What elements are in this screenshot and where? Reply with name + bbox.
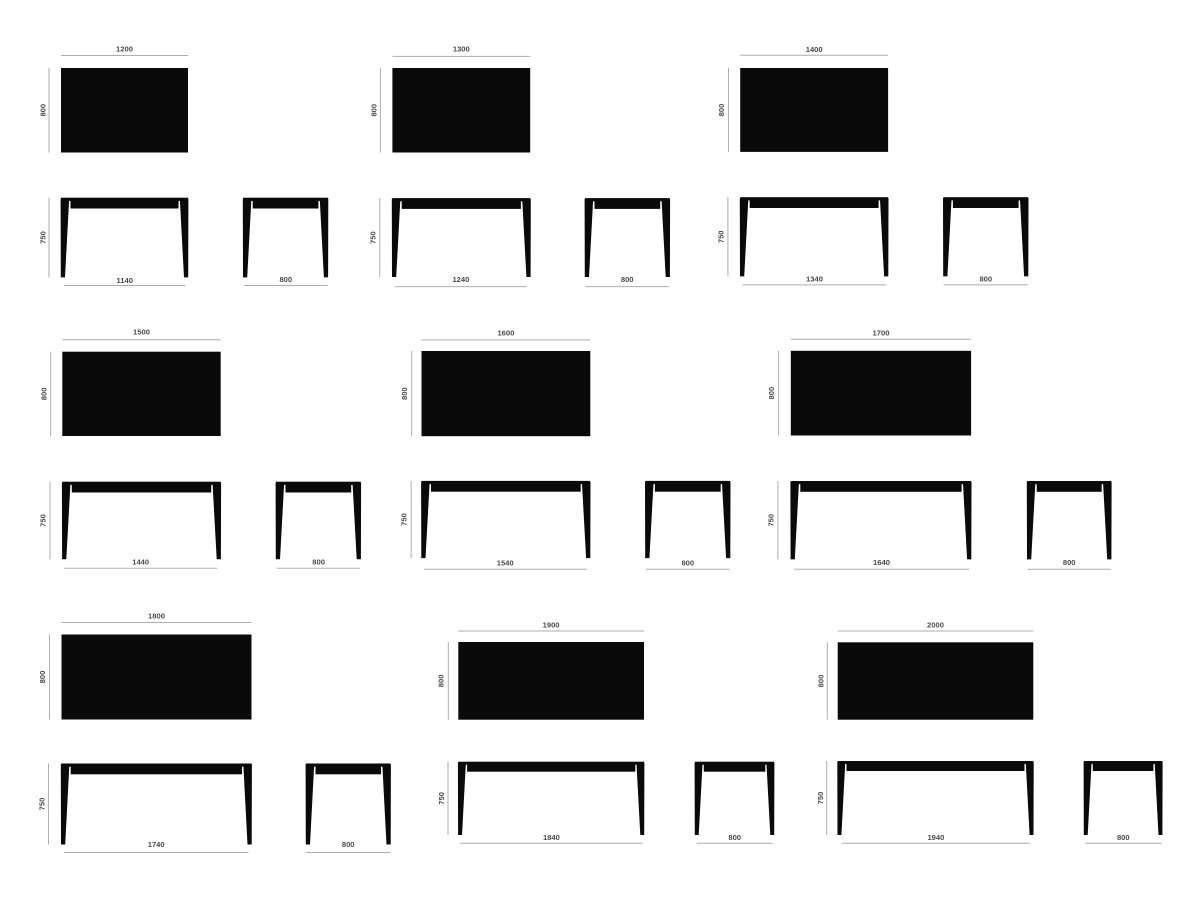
svg-text:750: 750 [717, 230, 726, 243]
svg-text:800: 800 [342, 840, 355, 849]
svg-text:800: 800 [1117, 833, 1130, 842]
svg-text:800: 800 [1063, 558, 1076, 567]
svg-text:1240: 1240 [452, 275, 469, 284]
svg-text:800: 800 [767, 387, 776, 400]
svg-text:750: 750 [369, 231, 378, 244]
svg-text:800: 800 [38, 671, 47, 684]
svg-text:800: 800 [39, 388, 48, 401]
svg-text:1800: 1800 [148, 612, 165, 621]
svg-text:800: 800 [39, 104, 48, 117]
svg-text:800: 800 [728, 833, 741, 842]
svg-text:800: 800 [437, 675, 446, 688]
svg-text:1500: 1500 [133, 328, 150, 337]
svg-text:1200: 1200 [116, 45, 133, 54]
svg-text:800: 800 [370, 104, 379, 117]
svg-text:750: 750 [38, 514, 47, 527]
svg-text:1340: 1340 [806, 274, 823, 283]
svg-text:800: 800 [681, 559, 694, 568]
svg-text:800: 800 [717, 104, 726, 117]
svg-text:1740: 1740 [148, 840, 165, 849]
svg-text:750: 750 [816, 792, 825, 805]
svg-text:1440: 1440 [132, 558, 149, 567]
svg-text:1700: 1700 [873, 328, 890, 337]
svg-text:1400: 1400 [806, 45, 823, 54]
svg-text:800: 800 [312, 558, 325, 567]
svg-text:1900: 1900 [543, 620, 560, 629]
svg-text:1600: 1600 [497, 328, 514, 337]
svg-text:1540: 1540 [497, 559, 514, 568]
svg-text:750: 750 [437, 792, 446, 805]
svg-text:800: 800 [400, 387, 409, 400]
svg-text:800: 800 [621, 275, 634, 284]
svg-text:800: 800 [816, 675, 825, 688]
svg-text:1640: 1640 [873, 558, 890, 567]
svg-text:1300: 1300 [453, 45, 470, 54]
svg-text:1140: 1140 [116, 276, 132, 285]
svg-text:750: 750 [400, 513, 409, 526]
svg-text:750: 750 [767, 514, 776, 527]
svg-text:2000: 2000 [927, 620, 944, 629]
svg-text:800: 800 [979, 274, 992, 283]
svg-text:1940: 1940 [927, 833, 944, 842]
svg-text:800: 800 [279, 275, 292, 284]
svg-text:750: 750 [39, 231, 48, 244]
svg-text:1840: 1840 [543, 833, 560, 842]
svg-text:750: 750 [38, 798, 47, 811]
